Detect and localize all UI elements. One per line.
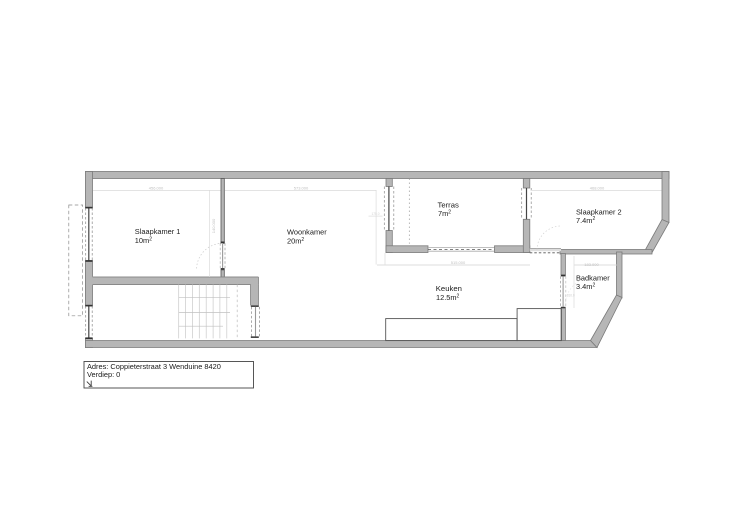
svg-text:310.0: 310.0 (567, 294, 575, 298)
svg-text:Slaapkamer 1: Slaapkamer 1 (135, 227, 181, 236)
svg-text:573.000: 573.000 (294, 185, 309, 190)
svg-text:468.000: 468.000 (590, 185, 605, 190)
svg-text:183.000: 183.000 (584, 262, 599, 267)
svg-text:140.000: 140.000 (211, 218, 216, 233)
svg-text:515.000: 515.000 (451, 260, 466, 265)
svg-text:Keuken: Keuken (436, 284, 462, 293)
svg-text:175.0: 175.0 (372, 212, 380, 216)
svg-text:12.5m2: 12.5m2 (436, 293, 460, 302)
svg-text:Woonkamer: Woonkamer (287, 227, 327, 236)
svg-text:456.000: 456.000 (149, 185, 164, 190)
svg-text:Verdiep: 0: Verdiep: 0 (87, 370, 120, 379)
